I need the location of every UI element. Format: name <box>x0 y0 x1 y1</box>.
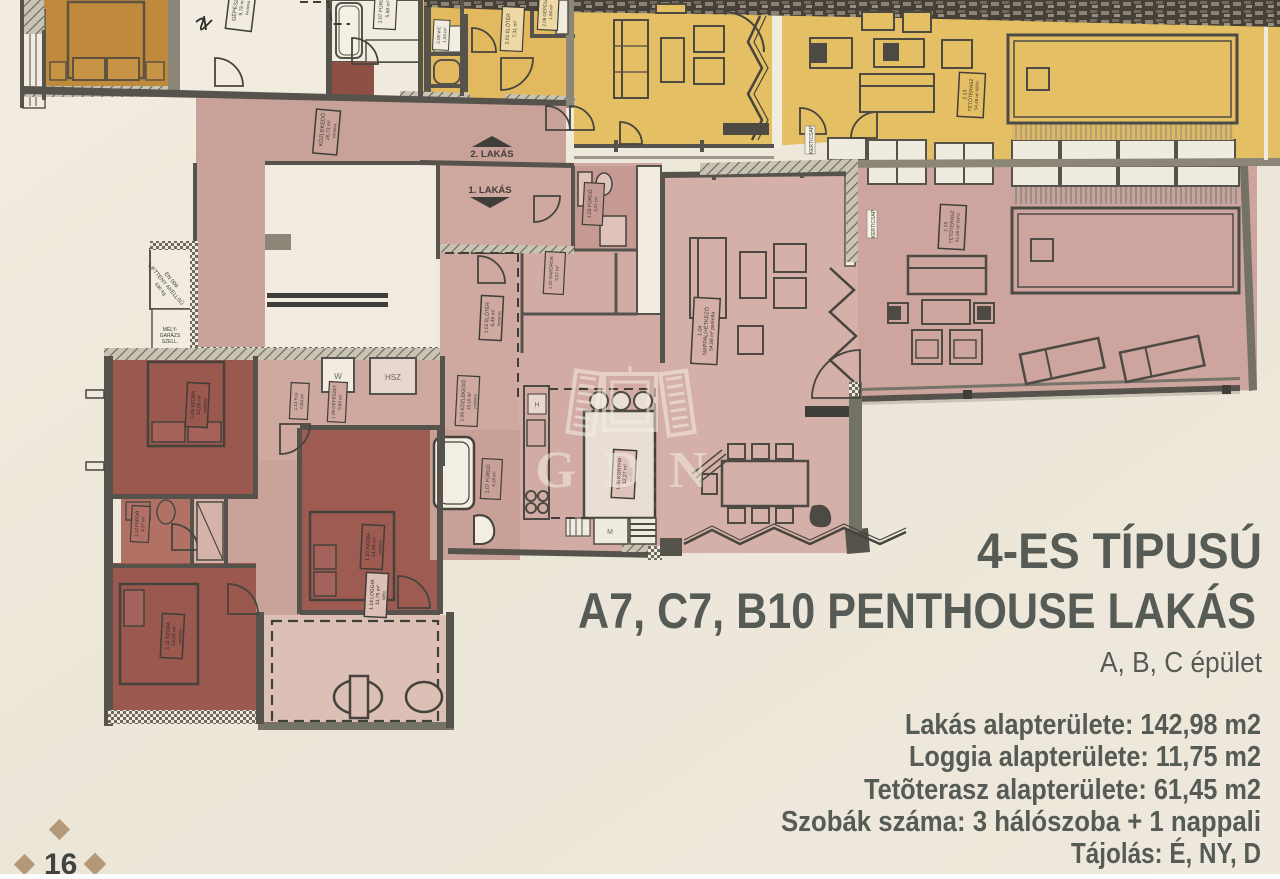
svg-text:Szobák száma: 3 hálószoba + 1: Szobák száma: 3 hálószoba + 1 nappali <box>781 806 1261 838</box>
svg-text:A7, C7, B10 PENTHOUSE LAKÁS: A7, C7, B10 PENTHOUSE LAKÁS <box>578 583 1256 639</box>
svg-text:KERTICSAP: KERTICSAP <box>871 209 877 238</box>
svg-text:0,84 m²: 0,84 m² <box>299 393 305 409</box>
svg-text:3,57 m²: 3,57 m² <box>554 265 560 281</box>
svg-text:4,17 m²: 4,17 m² <box>140 516 146 532</box>
svg-text:HSZ: HSZ <box>385 373 401 382</box>
svg-text:parketta: parketta <box>472 393 478 408</box>
svg-text:3,07 m²: 3,07 m² <box>593 196 599 212</box>
svg-text:SZELL.: SZELL. <box>162 339 179 345</box>
svg-text:1. LAKÁS: 1. LAKÁS <box>468 185 511 196</box>
svg-text:1.13 H.H.: 1.13 H.H. <box>293 391 299 410</box>
svg-text:16: 16 <box>44 848 77 874</box>
svg-text:WPC: WPC <box>381 591 386 601</box>
svg-text:Tetõterasz alapterülete: 61,45: Tetõterasz alapterülete: 61,45 m2 <box>864 774 1261 806</box>
svg-text:W: W <box>334 372 342 381</box>
svg-text:0,84 m²: 0,84 m² <box>337 394 343 410</box>
svg-text:5,68 m²: 5,68 m² <box>385 0 392 18</box>
svg-text:GARÁZS: GARÁZS <box>160 332 181 339</box>
svg-text:GDN: GDN <box>535 442 735 499</box>
svg-text:MÉLY-: MÉLY- <box>163 326 178 333</box>
svg-text:Tájolás: É, NY, D: Tájolás: É, NY, D <box>1071 836 1261 870</box>
svg-text:10,16 m²: 10,16 m² <box>466 392 472 410</box>
svg-text:2. LAKÁS: 2. LAKÁS <box>470 149 513 160</box>
svg-text:1,04 m²: 1,04 m² <box>548 4 554 20</box>
svg-text:Loggia alapterülete: 11,75 m2: Loggia alapterülete: 11,75 m2 <box>909 741 1261 773</box>
svg-text:H: H <box>534 402 539 409</box>
svg-text:7,31 m²: 7,31 m² <box>512 20 519 38</box>
svg-text:KERTICSAP: KERTICSAP <box>809 125 815 154</box>
svg-text:1,50 m²: 1,50 m² <box>442 27 448 43</box>
svg-text:4,18 m²: 4,18 m² <box>491 471 497 487</box>
svg-text:4-ES TÍPUSÚ: 4-ES TÍPUSÚ <box>977 523 1262 579</box>
svg-text:parketta: parketta <box>377 539 383 554</box>
svg-text:M: M <box>607 529 613 536</box>
svg-text:2.06 WC: 2.06 WC <box>436 25 442 43</box>
svg-text:kerámia: kerámia <box>496 310 502 325</box>
svg-text:parketta: parketta <box>177 628 183 643</box>
svg-text:Lakás alapterülete: 142,98 m2: Lakás alapterülete: 142,98 m2 <box>905 709 1261 741</box>
svg-text:parketta: parketta <box>202 397 208 412</box>
svg-text:A, B, C épület: A, B, C épület <box>1100 647 1262 679</box>
